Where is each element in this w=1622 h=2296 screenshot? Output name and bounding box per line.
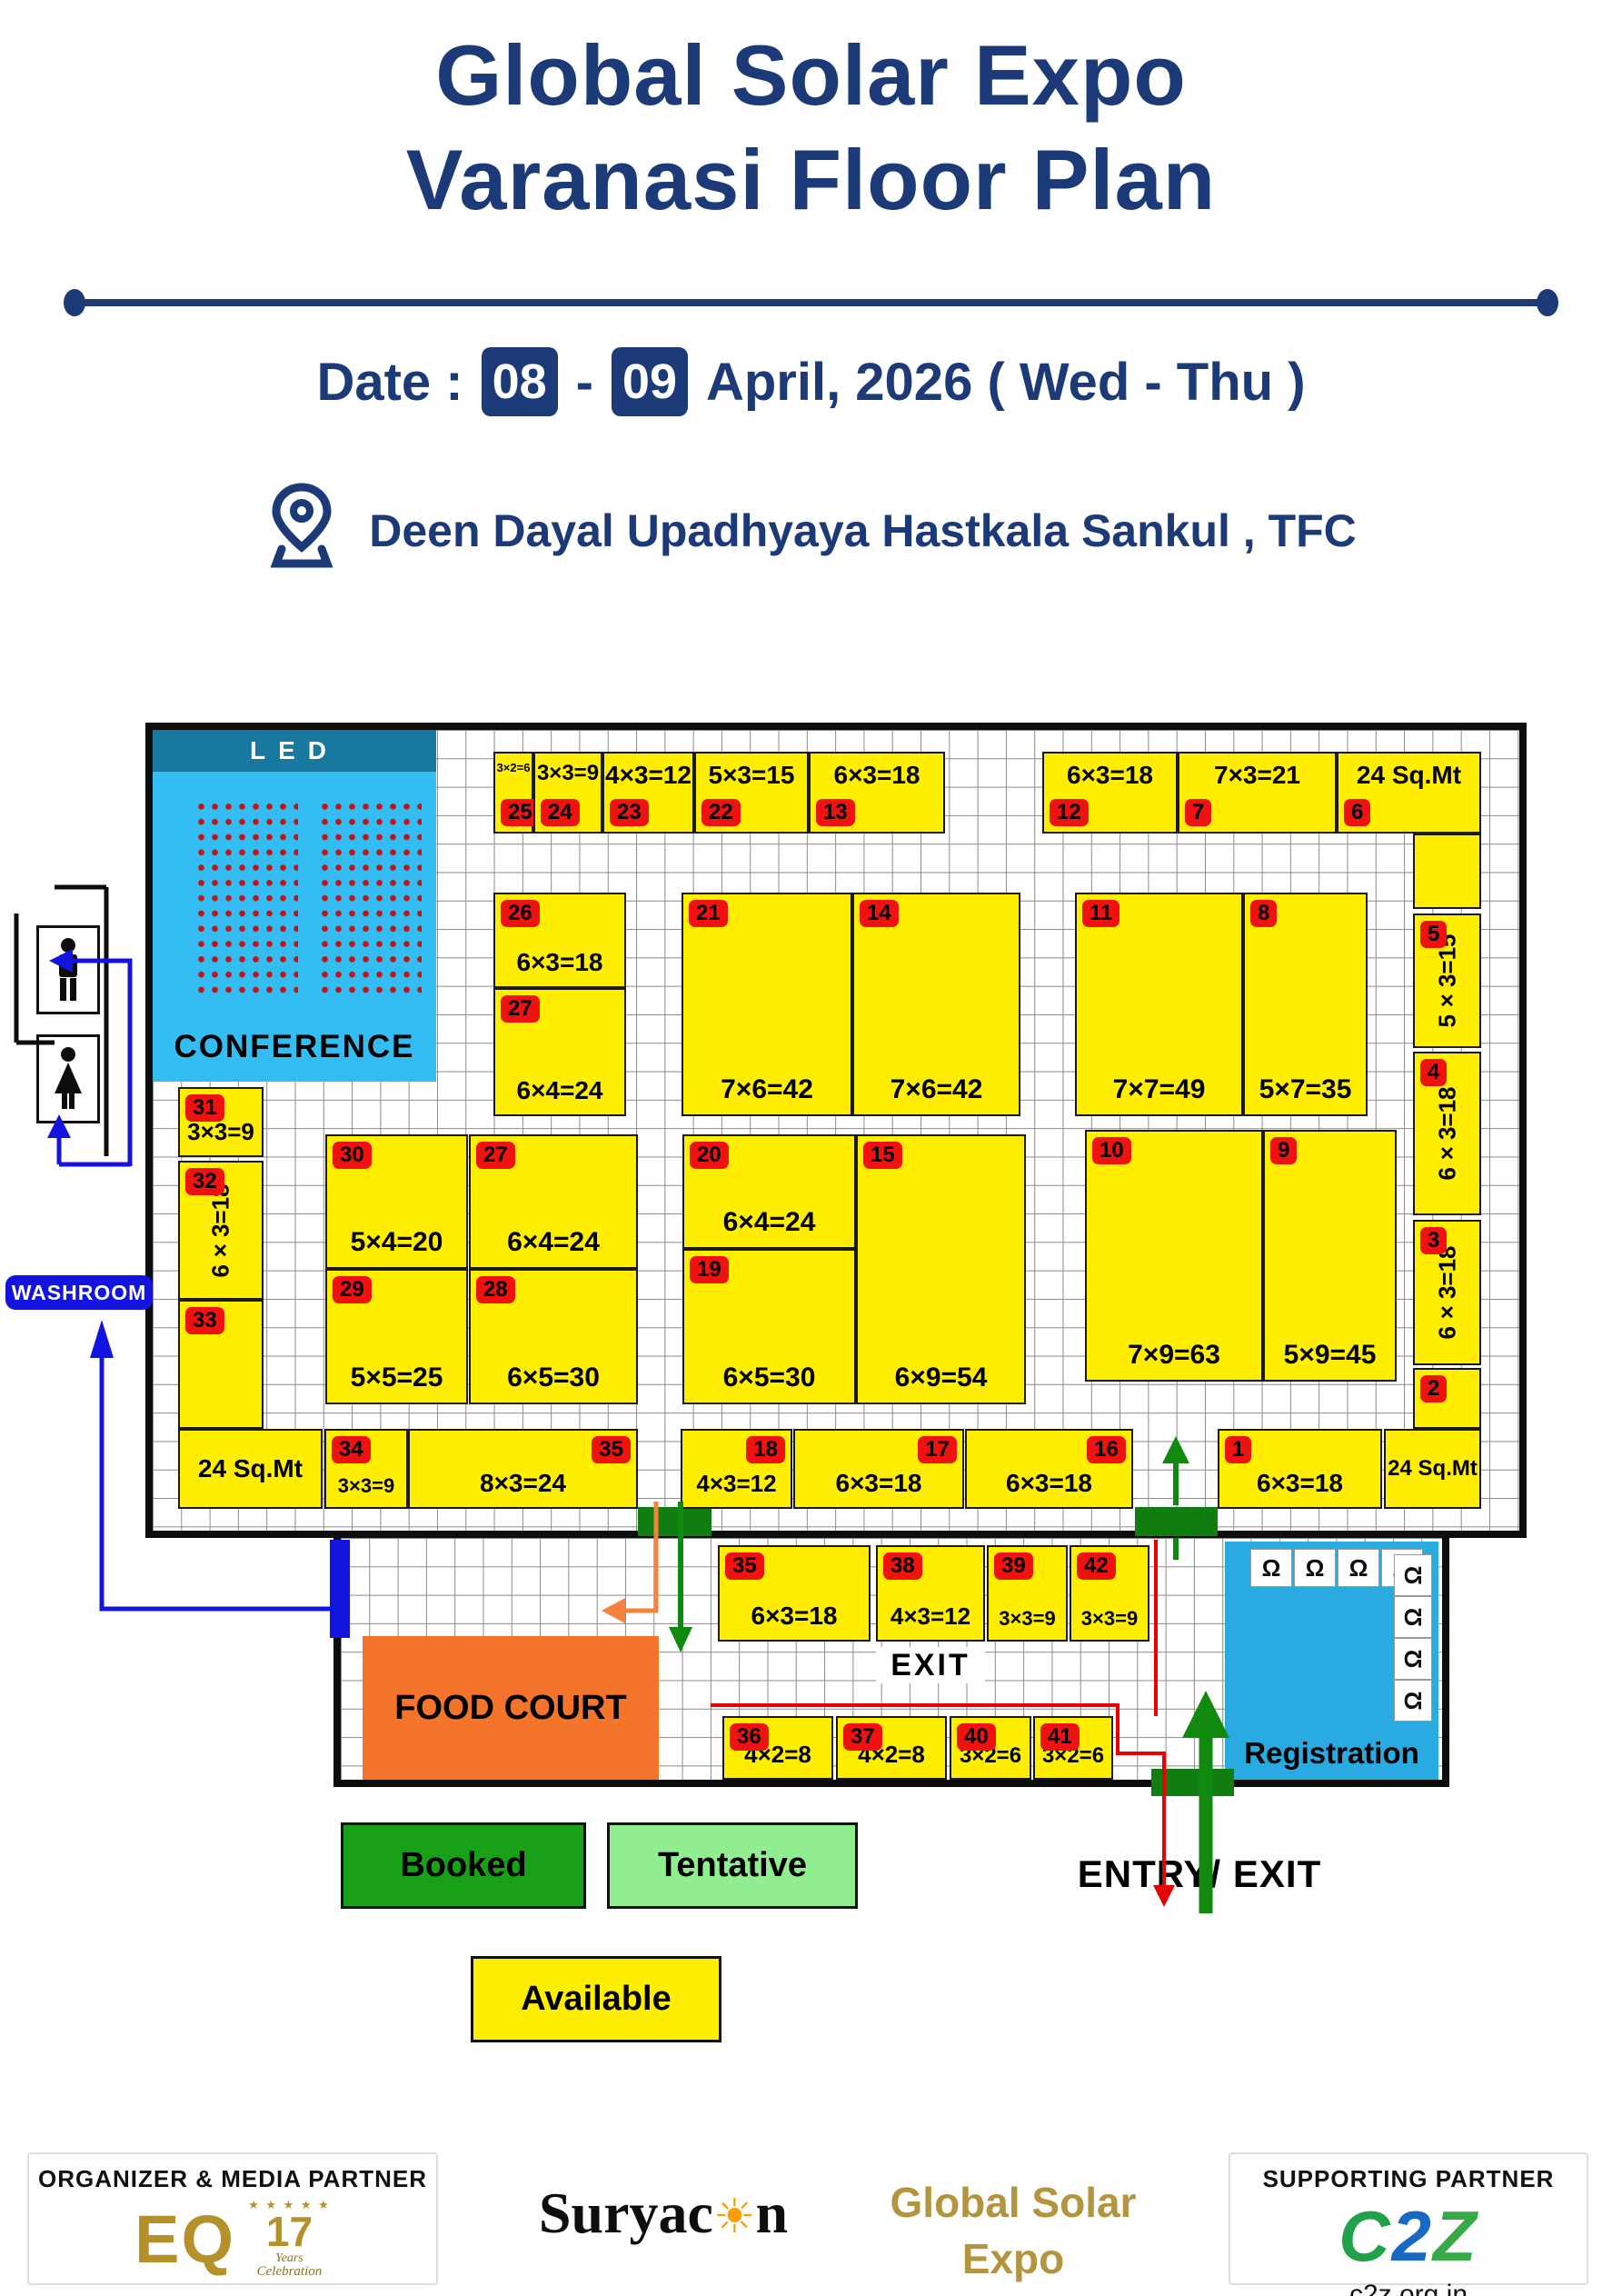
booth-11-size: 7×7=49	[1113, 1074, 1206, 1105]
booth-18: 4×3=1218	[681, 1429, 792, 1509]
booth-35a-number-badge: 35	[592, 1436, 631, 1463]
booth-2-stem-number-badge: 2	[1420, 1375, 1447, 1403]
booth-9-number-badge: 9	[1270, 1137, 1297, 1164]
booth-27a: 6×4=2427	[493, 988, 626, 1116]
booth-5-number-badge: 5	[1420, 921, 1447, 948]
eq-anniversary-years: Years	[275, 2252, 304, 2265]
booth-31-size: 3×3=9	[187, 1118, 254, 1146]
eq-logo: EQ ★ ★ ★ ★ ★ 17 Years Celebration	[134, 2199, 331, 2279]
booth-21: 7×6=4221	[682, 893, 852, 1116]
gse-line-2: Expo	[845, 2231, 1181, 2287]
booth-30-number-badge: 30	[333, 1142, 372, 1169]
booth-33-stem-number-badge: 33	[185, 1307, 224, 1334]
booth-12-number-badge: 12	[1050, 799, 1089, 826]
booth-20: 6×4=2420	[682, 1134, 856, 1249]
booth-19-number-badge: 19	[690, 1256, 729, 1283]
booth-18-number-badge: 18	[746, 1436, 785, 1463]
floor-plan-poster: Global Solar Expo Varanasi Floor Plan Da…	[0, 0, 1622, 2296]
supporting-partner-card: SUPPORTING PARTNER C 2 Z c2z.org.in	[1229, 2152, 1588, 2285]
booth-22-size: 5×3=15	[709, 761, 795, 790]
legend-booked: Booked	[341, 1822, 586, 1909]
booth-5: 5×3=155	[1413, 913, 1481, 1048]
legend-tentative-label: Tentative	[658, 1846, 807, 1885]
booth-7-size: 7×3=21	[1214, 761, 1300, 790]
booth-11: 7×7=4911	[1075, 893, 1243, 1116]
booth-41-number-badge: 41	[1040, 1723, 1080, 1751]
booth-layer: 3×2=6253×3=9244×3=12235×3=15226×3=18136×…	[0, 0, 1622, 2296]
booth-31-number-badge: 31	[185, 1094, 224, 1122]
booth-29-number-badge: 29	[333, 1276, 372, 1303]
booth-37-number-badge: 37	[843, 1723, 882, 1751]
booth-35a-size: 8×3=24	[480, 1469, 566, 1498]
booth-28-number-badge: 28	[476, 1276, 515, 1303]
booth-24-size: 3×3=9	[537, 761, 599, 786]
booth-8-number-badge: 8	[1250, 900, 1277, 927]
booth-3-size: 6×3=18	[1433, 1245, 1461, 1339]
booth-29-size: 5×5=25	[351, 1363, 443, 1393]
booth-19-size: 6×5=30	[723, 1363, 816, 1393]
booth-14-size: 7×6=42	[891, 1074, 983, 1105]
booth-17-number-badge: 17	[918, 1436, 957, 1463]
booth-25-size: 3×2=6	[497, 761, 531, 774]
booth-24-number-badge: 24	[541, 799, 580, 826]
booth-39: 3×3=939	[987, 1545, 1068, 1642]
booth-7-number-badge: 7	[1185, 799, 1211, 826]
organizer-partner-card: ORGANIZER & MEDIA PARTNER EQ ★ ★ ★ ★ ★ 1…	[27, 2152, 438, 2285]
booth-33-stem: 33	[178, 1300, 264, 1429]
booth-29: 5×5=2529	[325, 1269, 468, 1404]
suryacon-text-pre: Suryac	[539, 2181, 713, 2245]
booth-18-size: 4×3=12	[696, 1470, 776, 1498]
booth-36: 4×2=836	[722, 1716, 833, 1780]
booth-6-stem	[1413, 834, 1481, 909]
suryacon-text-post: n	[756, 2181, 789, 2245]
booth-16-number-badge: 16	[1087, 1436, 1126, 1463]
booth-2-stem: 2	[1413, 1368, 1481, 1429]
legend-available-label: Available	[521, 1980, 671, 2019]
sun-icon: ☀	[713, 2190, 756, 2244]
booth-21-size: 7×6=42	[721, 1074, 813, 1105]
booth-27a-number-badge: 27	[501, 995, 540, 1023]
c2z-letter-z: Z	[1433, 2195, 1478, 2278]
eq-anniversary-celebration: Celebration	[257, 2265, 323, 2279]
booth-11-number-badge: 11	[1082, 900, 1119, 927]
booth-22-number-badge: 22	[702, 799, 741, 826]
booth-27b-size: 6×4=24	[507, 1227, 600, 1258]
booth-14-number-badge: 14	[860, 900, 899, 927]
booth-41: 3×2=641	[1033, 1716, 1113, 1780]
booth-12: 6×3=1812	[1042, 752, 1178, 834]
booth-36-number-badge: 36	[730, 1723, 769, 1751]
booth-7: 7×3=217	[1178, 752, 1337, 834]
booth-39-number-badge: 39	[994, 1552, 1033, 1580]
booth-2: 24 Sq.Mt	[1384, 1429, 1481, 1509]
booth-6-number-badge: 6	[1344, 799, 1370, 826]
booth-23-size: 4×3=12	[605, 761, 692, 790]
eq-anniversary-badge: ★ ★ ★ ★ ★ 17 Years Celebration	[248, 2199, 331, 2279]
booth-1: 6×3=181	[1218, 1429, 1382, 1509]
booth-38: 4×3=1238	[876, 1545, 985, 1642]
booth-10: 7×9=6310	[1085, 1130, 1263, 1382]
booth-3-number-badge: 3	[1420, 1227, 1447, 1254]
booth-8: 5×7=358	[1243, 893, 1368, 1116]
booth-42-size: 3×3=9	[1081, 1607, 1138, 1631]
booth-9: 5×9=459	[1263, 1130, 1397, 1382]
booth-33-size: 24 Sq.Mt	[198, 1454, 303, 1483]
booth-42-number-badge: 42	[1077, 1552, 1116, 1580]
booth-35a: 8×3=2435	[408, 1429, 638, 1509]
suryacon-logo: Suryac☀n	[473, 2180, 854, 2247]
booth-32-size: 6×3=18	[207, 1183, 235, 1277]
booth-21-number-badge: 21	[689, 900, 728, 927]
booth-35b-size: 6×3=18	[751, 1602, 838, 1631]
booth-10-number-badge: 10	[1092, 1137, 1131, 1164]
legend-available: Available	[471, 1956, 721, 2042]
booth-27a-size: 6×4=24	[517, 1076, 603, 1105]
booth-1-size: 6×3=18	[1257, 1469, 1343, 1498]
booth-38-size: 4×3=12	[891, 1602, 970, 1631]
booth-27b: 6×4=2427	[469, 1134, 638, 1269]
booth-26-size: 6×3=18	[517, 948, 603, 977]
booth-1-number-badge: 1	[1225, 1436, 1251, 1463]
booth-20-size: 6×4=24	[723, 1207, 816, 1238]
booth-28-size: 6×5=30	[507, 1363, 600, 1393]
organizer-heading: ORGANIZER & MEDIA PARTNER	[38, 2165, 427, 2193]
booth-34-size: 3×3=9	[338, 1474, 394, 1498]
booth-16-size: 6×3=18	[1006, 1469, 1092, 1498]
booth-6-size: 24 Sq.Mt	[1357, 761, 1461, 790]
booth-30-size: 5×4=20	[351, 1227, 443, 1258]
booth-27b-number-badge: 27	[476, 1142, 515, 1169]
gse-line-1: Global Solar	[845, 2174, 1181, 2231]
booth-31: 3×3=931	[178, 1087, 264, 1157]
eq-anniversary-number: 17	[266, 2211, 313, 2252]
booth-17: 6×3=1817	[793, 1429, 964, 1509]
booth-4-size: 6×3=18	[1433, 1086, 1461, 1180]
booth-13: 6×3=1813	[809, 752, 945, 834]
booth-39-size: 3×3=9	[999, 1607, 1055, 1631]
booth-22: 5×3=1522	[694, 752, 809, 834]
booth-12-size: 6×3=18	[1067, 761, 1153, 790]
booth-23-number-badge: 23	[610, 799, 649, 826]
booth-15: 6×9=5415	[856, 1134, 1026, 1404]
booth-33: 24 Sq.Mt	[178, 1429, 323, 1509]
supporting-heading: SUPPORTING PARTNER	[1263, 2165, 1555, 2193]
booth-2-size: 24 Sq.Mt	[1388, 1456, 1478, 1482]
booth-8-size: 5×7=35	[1259, 1074, 1352, 1105]
booth-26: 6×3=1826	[493, 893, 626, 988]
booth-4: 6×3=184	[1413, 1052, 1481, 1215]
booth-15-number-badge: 15	[863, 1142, 902, 1169]
legend-tentative: Tentative	[607, 1822, 858, 1909]
booth-3: 6×3=183	[1413, 1220, 1481, 1365]
booth-35b-number-badge: 35	[725, 1552, 764, 1580]
booth-6: 24 Sq.Mt6	[1337, 752, 1481, 834]
c2z-letter-c: C	[1338, 2195, 1391, 2278]
booth-37: 4×2=837	[836, 1716, 947, 1780]
booth-38-number-badge: 38	[883, 1552, 922, 1580]
c2z-logo: C 2 Z	[1338, 2195, 1478, 2278]
booth-9-size: 5×9=45	[1284, 1340, 1377, 1371]
booth-4-number-badge: 4	[1420, 1059, 1447, 1086]
booth-23: 4×3=1223	[602, 752, 694, 834]
booth-34-number-badge: 34	[332, 1436, 371, 1463]
booth-19: 6×5=3019	[682, 1249, 856, 1404]
booth-42: 3×3=942	[1070, 1545, 1149, 1642]
booth-10-size: 7×9=63	[1128, 1340, 1220, 1371]
booth-25: 3×2=625	[493, 752, 533, 834]
booth-34: 3×3=934	[324, 1429, 408, 1509]
booth-16: 6×3=1816	[965, 1429, 1133, 1509]
booth-24: 3×3=924	[533, 752, 602, 834]
c2z-letter-2: 2	[1392, 2195, 1433, 2278]
booth-13-size: 6×3=18	[834, 761, 920, 790]
c2z-website: c2z.org.in	[1349, 2280, 1468, 2296]
booth-32: 6×3=1832	[178, 1161, 264, 1300]
booth-20-number-badge: 20	[690, 1142, 729, 1169]
booth-40-number-badge: 40	[957, 1723, 996, 1751]
booth-35b: 6×3=1835	[718, 1545, 871, 1642]
eq-logo-text: EQ	[134, 2201, 235, 2278]
legend-booked-label: Booked	[400, 1846, 526, 1885]
booth-28: 6×5=3028	[469, 1269, 638, 1404]
global-solar-expo-wordmark: Global Solar Expo	[845, 2174, 1181, 2287]
booth-15-size: 6×9=54	[895, 1363, 988, 1393]
booth-14: 7×6=4214	[852, 893, 1020, 1116]
booth-26-number-badge: 26	[501, 900, 540, 927]
booth-40: 3×2=640	[950, 1716, 1031, 1780]
booth-13-number-badge: 13	[816, 799, 855, 826]
booth-32-number-badge: 32	[185, 1168, 224, 1195]
booth-30: 5×4=2030	[325, 1134, 468, 1269]
booth-17-size: 6×3=18	[836, 1469, 922, 1498]
